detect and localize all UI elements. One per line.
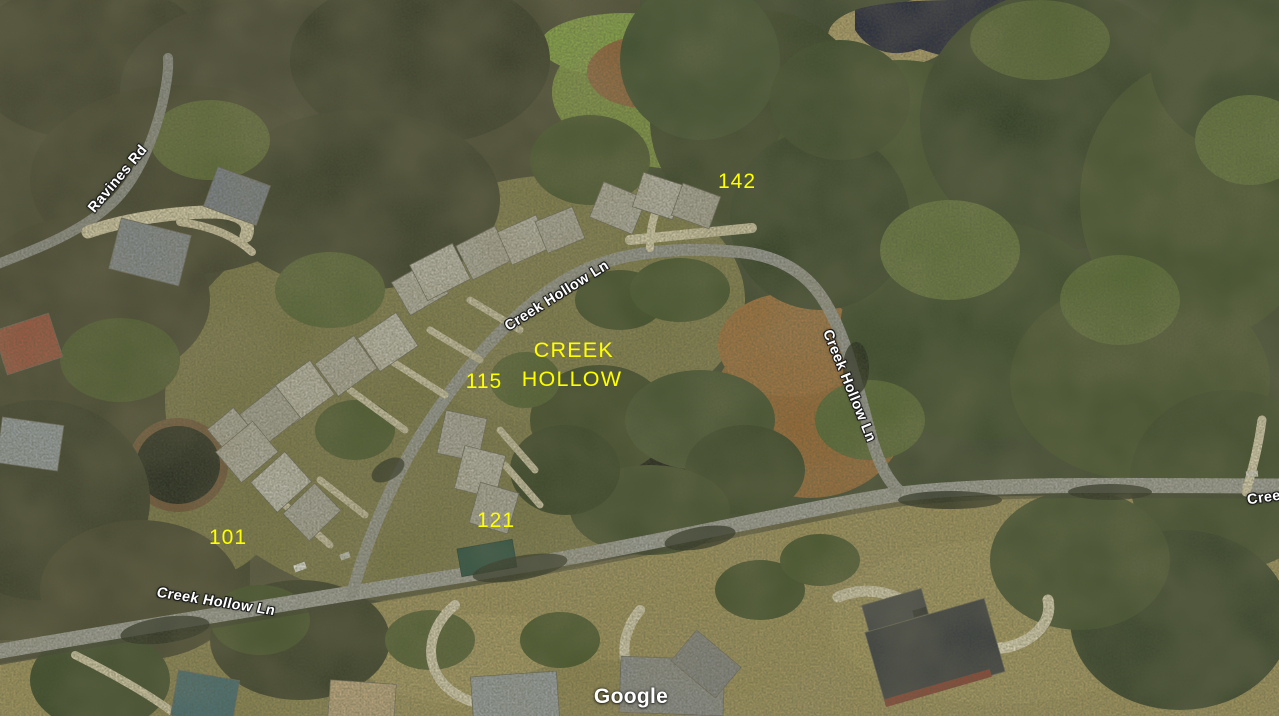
aerial-imagery [0, 0, 1279, 716]
texture-speckle [0, 0, 1279, 716]
map-canvas[interactable]: Ravines Rd Creek Hollow Ln Creek Hollow … [0, 0, 1279, 716]
